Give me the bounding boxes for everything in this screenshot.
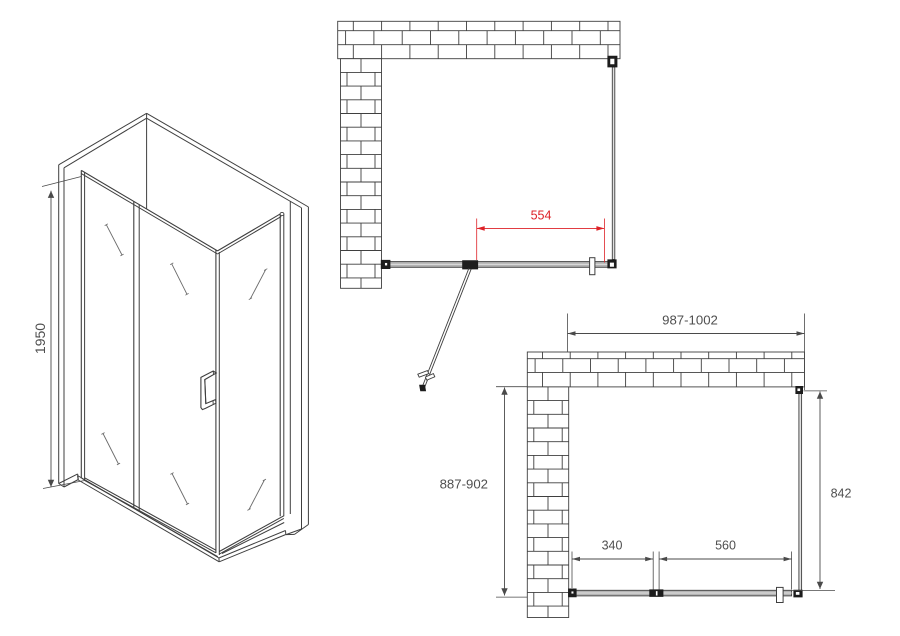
svg-text:560: 560 xyxy=(715,539,736,553)
svg-text:1950: 1950 xyxy=(32,323,48,354)
svg-text:887-902: 887-902 xyxy=(440,477,488,492)
svg-text:554: 554 xyxy=(531,209,552,223)
svg-text:987-1002: 987-1002 xyxy=(662,313,718,328)
svg-text:842: 842 xyxy=(831,487,852,501)
svg-text:340: 340 xyxy=(602,539,623,553)
